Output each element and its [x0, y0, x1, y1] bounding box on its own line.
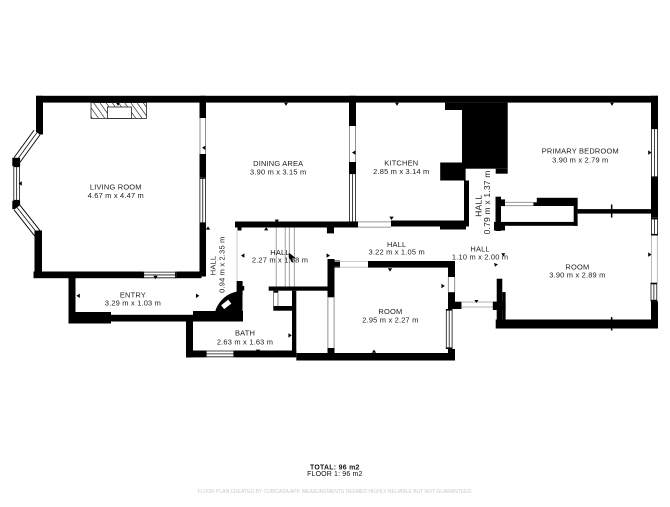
svg-text:3.29 m x 1.03 m: 3.29 m x 1.03 m	[105, 299, 161, 308]
svg-text:HALL: HALL	[209, 256, 218, 275]
svg-text:FLOOR PLAN CREATED BY CUBICASA: FLOOR PLAN CREATED BY CUBICASA APP. MEAS…	[198, 489, 473, 495]
svg-text:2.27 m x 1.58 m: 2.27 m x 1.58 m	[252, 256, 308, 265]
svg-text:0.94 m x 2.35 m: 0.94 m x 2.35 m	[217, 237, 226, 293]
svg-text:3.22 m x 1.05 m: 3.22 m x 1.05 m	[369, 248, 425, 257]
svg-text:2.95 m x 2.27 m: 2.95 m x 2.27 m	[362, 315, 418, 324]
svg-text:PRIMARY BEDROOM: PRIMARY BEDROOM	[542, 147, 619, 156]
svg-text:FLOOR 1: 96 m2: FLOOR 1: 96 m2	[307, 471, 362, 478]
svg-text:2.63 m x 1.63 m: 2.63 m x 1.63 m	[217, 337, 273, 346]
svg-text:3.90 m x 3.15 m: 3.90 m x 3.15 m	[250, 168, 306, 177]
svg-text:3.90 m x 2.79 m: 3.90 m x 2.79 m	[552, 156, 608, 165]
svg-text:3.90 m x 2.89 m: 3.90 m x 2.89 m	[549, 271, 605, 280]
svg-text:0.79 m x 1.37 m: 0.79 m x 1.37 m	[482, 170, 492, 234]
svg-text:1.10 m x 2.00 m: 1.10 m x 2.00 m	[452, 253, 508, 262]
svg-text:2.85 m x 3.14 m: 2.85 m x 3.14 m	[373, 167, 429, 176]
svg-text:4.67 m x 4.47 m: 4.67 m x 4.47 m	[88, 191, 144, 200]
